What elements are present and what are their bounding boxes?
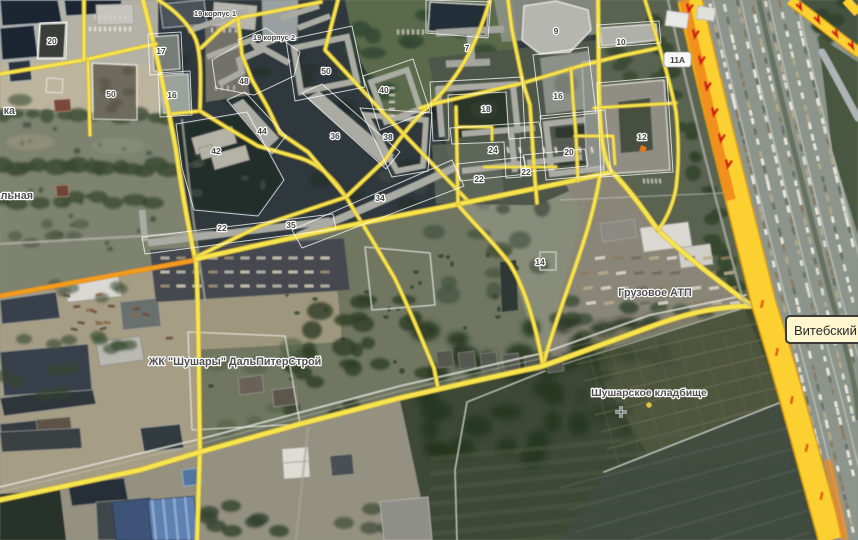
svg-text:34: 34	[375, 193, 385, 203]
svg-text:7: 7	[465, 43, 470, 53]
svg-text:48: 48	[239, 76, 249, 86]
svg-text:50: 50	[106, 89, 116, 99]
svg-text:44: 44	[257, 126, 267, 136]
svg-text:Грузовое АТП: Грузовое АТП	[618, 287, 692, 299]
svg-text:ЖК "Шушары" ДальПитерСтрой: ЖК "Шушары" ДальПитерСтрой	[148, 356, 322, 368]
svg-text:16: 16	[553, 91, 563, 101]
svg-text:10: 10	[616, 37, 626, 47]
svg-text:Шушарское кладбище: Шушарское кладбище	[591, 387, 707, 399]
svg-text:20: 20	[564, 147, 574, 157]
svg-text:ка: ка	[4, 105, 16, 117]
svg-text:19 корпус 1: 19 корпус 1	[194, 9, 236, 18]
svg-text:22: 22	[217, 223, 227, 233]
svg-text:18: 18	[481, 104, 491, 114]
svg-text:ельная: ельная	[0, 190, 33, 202]
svg-text:50: 50	[321, 66, 331, 76]
svg-text:20: 20	[47, 36, 57, 46]
svg-text:16: 16	[167, 90, 177, 100]
svg-text:9: 9	[554, 26, 559, 36]
svg-text:38: 38	[383, 132, 393, 142]
svg-text:11А: 11А	[670, 55, 685, 65]
svg-text:35: 35	[286, 220, 296, 230]
svg-text:17: 17	[156, 46, 166, 56]
svg-text:Витебский п: Витебский п	[794, 323, 858, 338]
svg-text:40: 40	[379, 85, 389, 95]
svg-text:36: 36	[330, 131, 340, 141]
svg-text:19 корпус 2: 19 корпус 2	[253, 33, 295, 42]
svg-text:22: 22	[521, 167, 531, 177]
svg-text:24: 24	[488, 145, 498, 155]
svg-text:12: 12	[637, 132, 647, 142]
svg-text:42: 42	[211, 146, 221, 156]
svg-text:22: 22	[474, 174, 484, 184]
svg-text:14: 14	[535, 257, 545, 267]
